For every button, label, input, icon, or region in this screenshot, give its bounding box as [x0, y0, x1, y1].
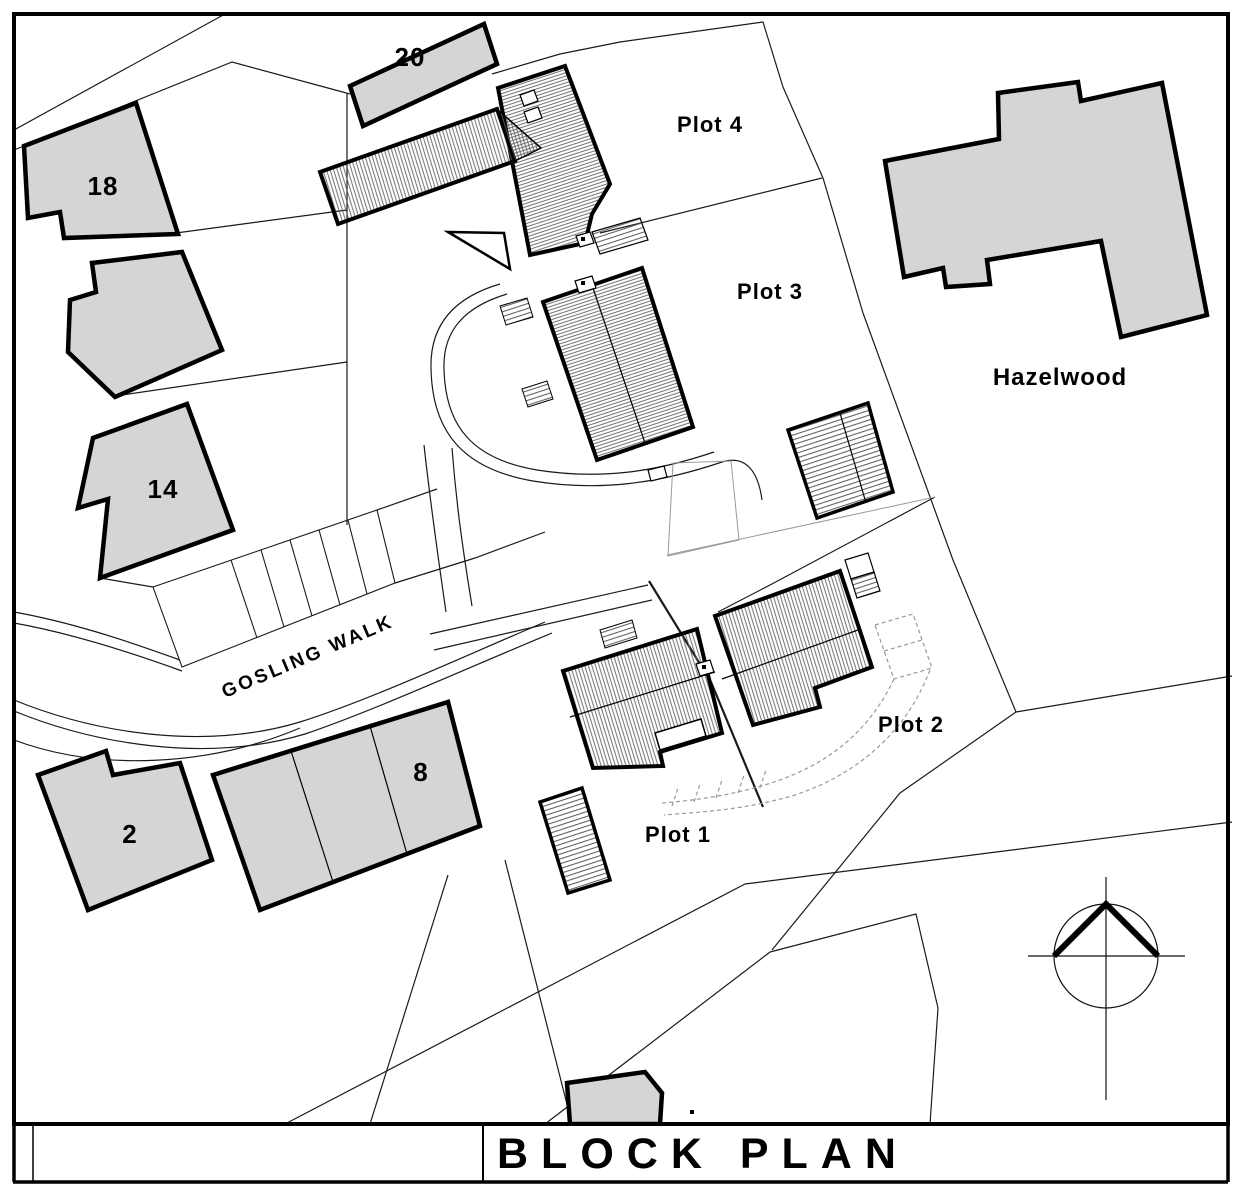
house-20-label: 20: [395, 42, 426, 72]
survey-dot: [690, 1110, 694, 1114]
site-plan-canvas: 20 18 14 2 8 Plot 4 Plot 3 Plot 2 Plot 1…: [0, 0, 1240, 1193]
plot1-label: Plot 1: [645, 822, 711, 847]
hazelwood-label: Hazelwood: [993, 364, 1127, 391]
chimney-dot: [581, 281, 585, 285]
plot3-label: Plot 3: [737, 279, 803, 304]
house-8-label: 8: [413, 757, 428, 787]
title-bar: BLOCK PLAN: [0, 1124, 1240, 1193]
plot4-label: Plot 4: [677, 112, 743, 137]
party-wall-dot: [702, 665, 706, 669]
block-plan-drawing: 20 18 14 2 8 Plot 4 Plot 3 Plot 2 Plot 1…: [0, 0, 1240, 1193]
house-18-label: 18: [88, 171, 119, 201]
house-14-label: 14: [148, 474, 179, 504]
building-south-fragment: [567, 1072, 662, 1124]
chimney-dot: [581, 237, 585, 241]
house-2-label: 2: [122, 819, 137, 849]
plot2-label: Plot 2: [878, 712, 944, 737]
drawing-title: BLOCK PLAN: [497, 1130, 909, 1178]
